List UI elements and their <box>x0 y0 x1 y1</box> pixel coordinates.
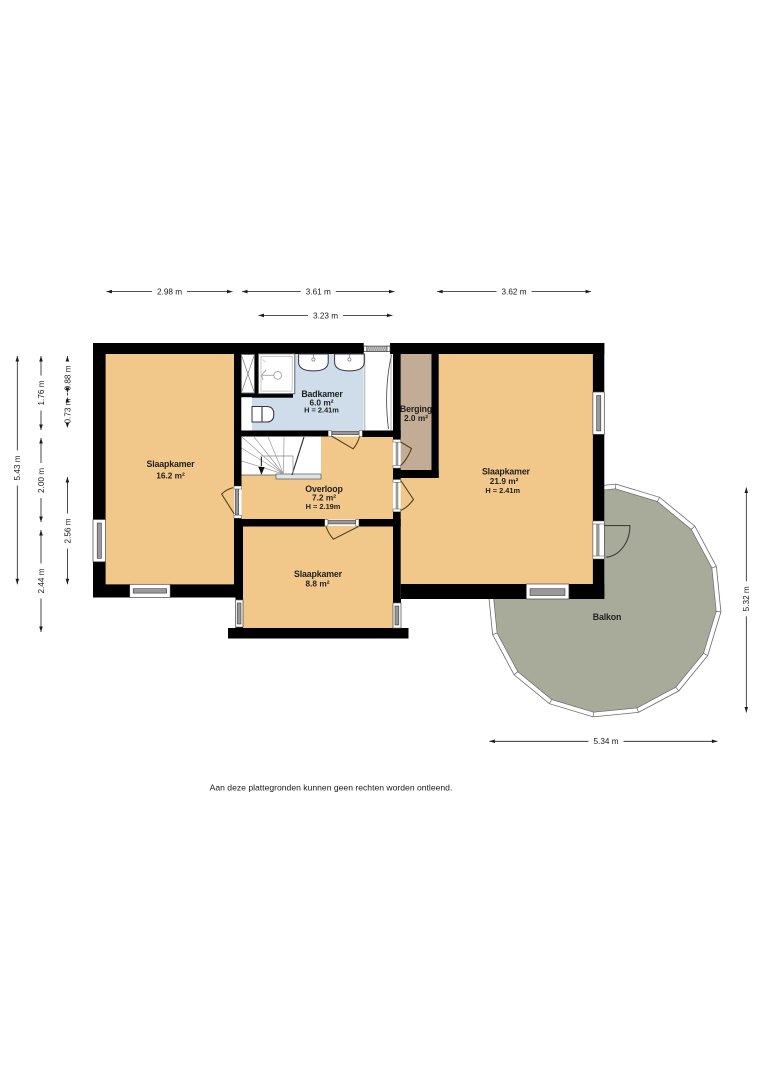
svg-text:2.56 m: 2.56 m <box>63 518 72 543</box>
svg-text:5.43 m: 5.43 m <box>13 455 22 480</box>
svg-text:Slaapkamer: Slaapkamer <box>482 467 531 477</box>
svg-text:2.00 m: 2.00 m <box>37 468 46 493</box>
svg-text:21.9 m²: 21.9 m² <box>490 476 519 486</box>
svg-text:H = 2.41m: H = 2.41m <box>485 486 520 495</box>
svg-text:0.73 m: 0.73 m <box>63 398 72 423</box>
svg-text:1.76 m: 1.76 m <box>37 380 46 405</box>
svg-text:H = 2.41m: H = 2.41m <box>304 406 339 415</box>
svg-text:Slaapkamer: Slaapkamer <box>294 569 343 579</box>
svg-text:3.62 m: 3.62 m <box>501 288 526 297</box>
svg-text:8.8 m²: 8.8 m² <box>306 579 330 589</box>
svg-text:3.61 m: 3.61 m <box>306 288 331 297</box>
svg-text:Balkon: Balkon <box>593 612 621 622</box>
svg-text:5.32 m: 5.32 m <box>742 586 751 611</box>
svg-text:5.34 m: 5.34 m <box>593 737 618 746</box>
svg-text:3.23 m: 3.23 m <box>313 311 338 320</box>
svg-text:16.2 m²: 16.2 m² <box>156 471 185 481</box>
svg-text:H = 2.19m: H = 2.19m <box>306 502 341 511</box>
svg-text:2.44 m: 2.44 m <box>37 568 46 593</box>
svg-text:Aan deze plattegronden kunnen: Aan deze plattegronden kunnen geen recht… <box>210 783 453 793</box>
svg-text:0.88 m: 0.88 m <box>63 365 72 390</box>
svg-text:2.0 m²: 2.0 m² <box>404 413 428 423</box>
svg-text:Slaapkamer: Slaapkamer <box>147 459 196 469</box>
svg-text:2.98 m: 2.98 m <box>157 288 182 297</box>
